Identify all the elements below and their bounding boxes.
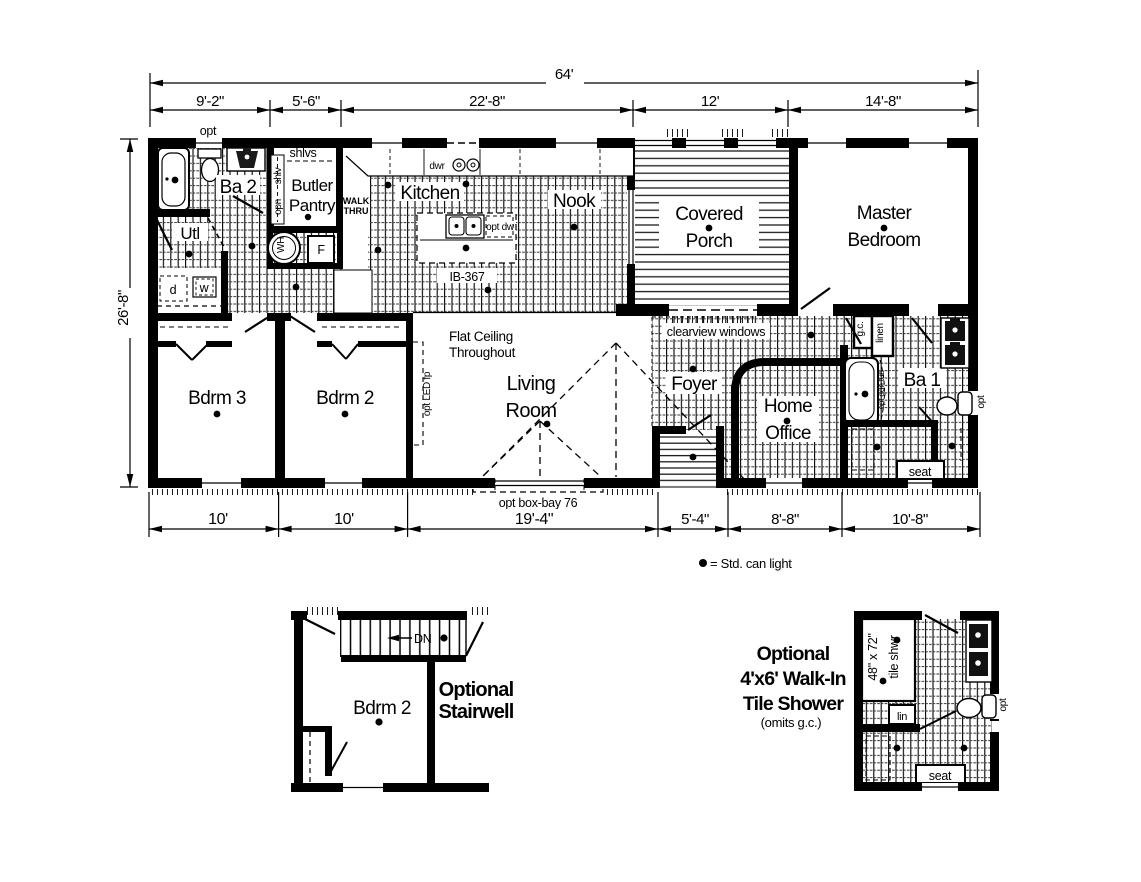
svg-text:DN: DN xyxy=(414,632,432,646)
svg-text:Foyer: Foyer xyxy=(671,374,718,395)
svg-text:linen: linen xyxy=(875,323,886,343)
svg-text:Tile Shower: Tile Shower xyxy=(743,693,844,715)
svg-text:Ba 2: Ba 2 xyxy=(220,177,257,198)
svg-text:seat: seat xyxy=(929,769,952,783)
svg-text:Stairwell: Stairwell xyxy=(438,701,513,723)
svg-text:opt gdn tub: opt gdn tub xyxy=(876,370,886,410)
svg-text:Porch: Porch xyxy=(686,231,733,252)
svg-text:64': 64' xyxy=(555,66,574,83)
svg-text:Kitchen: Kitchen xyxy=(400,183,459,204)
svg-text:Bdrm 2: Bdrm 2 xyxy=(316,388,374,409)
svg-text:4'x6' Walk-In: 4'x6' Walk-In xyxy=(740,668,845,690)
svg-text:Throughout: Throughout xyxy=(449,345,516,360)
svg-text:Master: Master xyxy=(857,203,913,224)
svg-text:Bedroom: Bedroom xyxy=(848,230,921,251)
svg-text:Ba 1: Ba 1 xyxy=(904,370,941,391)
svg-text:shlvs: shlvs xyxy=(290,146,317,160)
svg-text:opt LED fp: opt LED fp xyxy=(422,371,433,416)
svg-text:lin: lin xyxy=(897,711,907,723)
svg-text:w: w xyxy=(199,281,210,295)
svg-text:Living: Living xyxy=(507,373,556,395)
svg-text:THRU: THRU xyxy=(344,206,369,216)
svg-text:WALK: WALK xyxy=(343,196,370,206)
svg-text:Optional: Optional xyxy=(757,643,830,665)
svg-text:Utl: Utl xyxy=(180,224,199,243)
svg-text:19'-4": 19'-4" xyxy=(515,511,553,528)
svg-text:opt: opt xyxy=(998,698,1009,712)
svg-text:opt: opt xyxy=(200,124,217,138)
svg-text:opn: opn xyxy=(273,199,284,215)
svg-text:opt dw: opt dw xyxy=(486,222,515,233)
svg-text:5'-4": 5'-4" xyxy=(681,511,709,528)
svg-text:F: F xyxy=(317,243,325,257)
svg-text:shlv: shlv xyxy=(273,167,284,184)
svg-text:d: d xyxy=(170,283,177,297)
svg-text:Optional: Optional xyxy=(439,679,514,701)
svg-text:clearview windows: clearview windows xyxy=(667,325,765,339)
svg-text:g.c.: g.c. xyxy=(855,322,866,337)
svg-text:Pantry: Pantry xyxy=(289,196,336,215)
svg-text:48" x 72": 48" x 72" xyxy=(866,633,880,680)
svg-text:10': 10' xyxy=(334,511,354,528)
svg-text:14'-8": 14'-8" xyxy=(865,93,901,110)
svg-text:12': 12' xyxy=(701,93,720,110)
svg-text:= Std. can light: = Std. can light xyxy=(710,556,792,571)
svg-text:Bdrm 2: Bdrm 2 xyxy=(353,698,411,719)
svg-text:dwr: dwr xyxy=(429,161,445,172)
svg-text:Flat Ceiling: Flat Ceiling xyxy=(449,329,513,344)
svg-text:8'-8": 8'-8" xyxy=(771,511,799,528)
svg-text:(omits g.c.): (omits g.c.) xyxy=(761,715,822,730)
svg-text:Covered: Covered xyxy=(675,204,743,225)
svg-text:Butler: Butler xyxy=(291,176,333,195)
svg-text:Room: Room xyxy=(506,400,557,422)
svg-text:opt box-bay 76: opt box-bay 76 xyxy=(499,496,578,510)
svg-text:IB-367: IB-367 xyxy=(449,270,484,284)
svg-text:22'-8": 22'-8" xyxy=(469,93,505,110)
svg-text:Bdrm 3: Bdrm 3 xyxy=(188,388,246,409)
svg-text:seat: seat xyxy=(909,465,932,479)
svg-text:WH: WH xyxy=(276,237,287,253)
svg-text:Home: Home xyxy=(764,396,812,417)
svg-text:opt: opt xyxy=(976,395,987,409)
svg-text:26'-8": 26'-8" xyxy=(115,290,132,326)
svg-text:5'-6": 5'-6" xyxy=(292,93,320,110)
svg-text:9'-2": 9'-2" xyxy=(196,93,224,110)
svg-text:10'-8": 10'-8" xyxy=(892,511,928,528)
svg-text:10': 10' xyxy=(208,511,228,528)
svg-text:Nook: Nook xyxy=(553,191,596,212)
svg-text:Office: Office xyxy=(765,423,811,444)
